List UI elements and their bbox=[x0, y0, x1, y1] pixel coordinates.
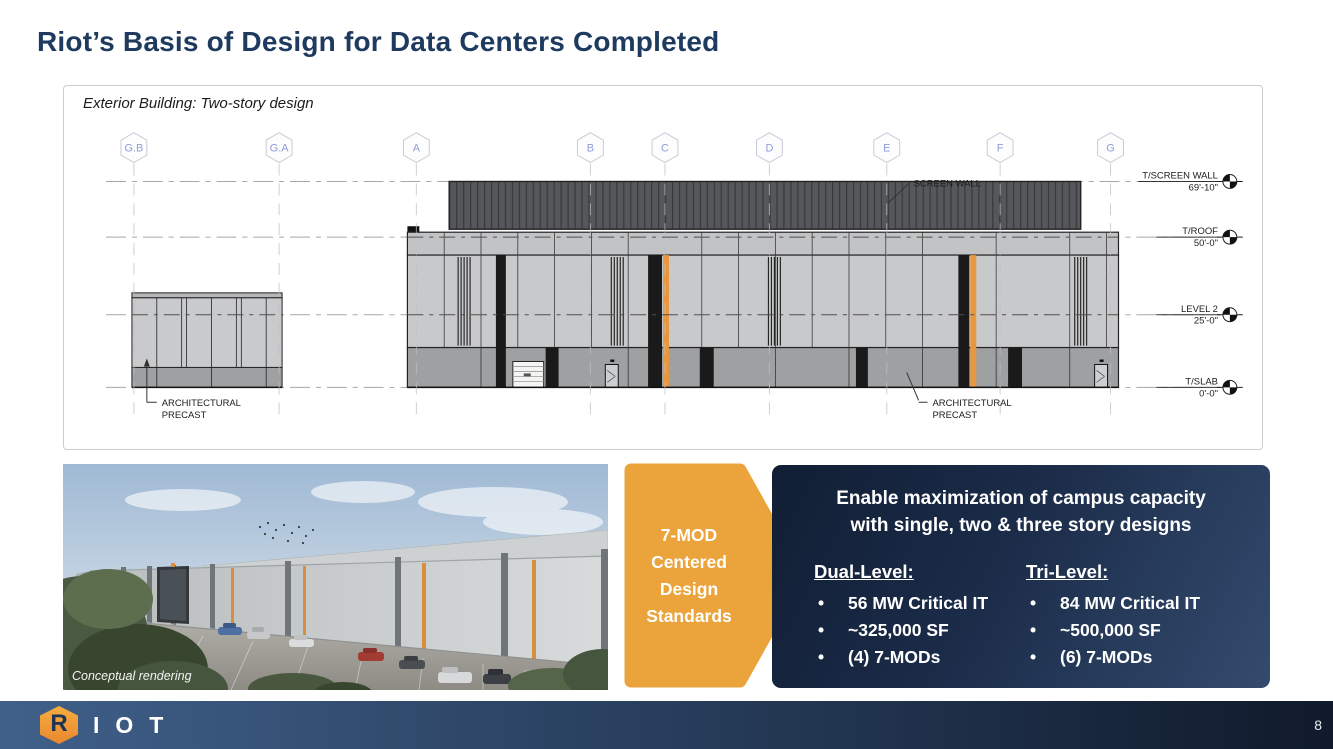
list-item: ~325,000 SF bbox=[814, 617, 1024, 644]
chevron-line: Design bbox=[660, 576, 718, 603]
list-item: (6) 7-MODs bbox=[1026, 644, 1252, 671]
list-item: ~500,000 SF bbox=[1026, 617, 1252, 644]
svg-text:T/SLAB: T/SLAB bbox=[1185, 376, 1218, 387]
small-precast-building bbox=[132, 293, 282, 387]
grid-label: B bbox=[587, 143, 594, 155]
elevation-drawing: G.B G.A A B C D E F G SCREEN WALL ARCHIT… bbox=[64, 86, 1262, 449]
page-number: 8 bbox=[1314, 717, 1322, 733]
orange-stripe bbox=[663, 255, 669, 387]
heading-line-2: with single, two & three story designs bbox=[772, 512, 1270, 539]
capacity-info-box: Enable maximization of campus capacity w… bbox=[772, 465, 1270, 688]
rendering-scene bbox=[63, 464, 608, 690]
heading-line-1: Enable maximization of campus capacity bbox=[772, 485, 1270, 512]
chevron-line: 7-MOD bbox=[661, 522, 717, 549]
chevron-line: Standards bbox=[646, 603, 732, 630]
footer-bar: R IOT 8 bbox=[0, 701, 1333, 749]
list-item: 56 MW Critical IT bbox=[814, 590, 1024, 617]
grid-label: D bbox=[765, 143, 773, 155]
grid-label: C bbox=[661, 143, 669, 155]
grid-label: G.A bbox=[270, 143, 290, 155]
riot-wordmark: IOT bbox=[93, 712, 179, 739]
svg-text:25'-0": 25'-0" bbox=[1194, 316, 1218, 327]
svg-text:ARCHITECTURAL: ARCHITECTURAL bbox=[933, 398, 1012, 409]
screen-wall-label: SCREEN WALL bbox=[914, 178, 981, 189]
bullet-icon bbox=[814, 590, 848, 617]
chevron-label: 7-MOD Centered Design Standards bbox=[624, 463, 754, 688]
svg-text:69'-10": 69'-10" bbox=[1189, 182, 1218, 193]
bullet-icon bbox=[814, 617, 848, 644]
riot-logo: R IOT bbox=[40, 706, 179, 744]
info-box-columns: Dual-Level: 56 MW Critical IT ~325,000 S… bbox=[814, 561, 1252, 671]
svg-text:LEVEL 2: LEVEL 2 bbox=[1181, 304, 1218, 315]
elevation-mark: T/SCREEN WALL 69'-10" bbox=[1138, 170, 1242, 193]
tri-level-heading: Tri-Level: bbox=[1026, 561, 1252, 583]
svg-text:PRECAST: PRECAST bbox=[933, 410, 978, 421]
riot-hex-letter: R bbox=[50, 710, 67, 738]
bullet-icon bbox=[1026, 644, 1060, 671]
svg-text:T/ROOF: T/ROOF bbox=[1182, 226, 1218, 237]
list-item: (4) 7-MODs bbox=[814, 644, 1024, 671]
orange-stripe bbox=[970, 255, 976, 387]
grid-label: E bbox=[883, 143, 890, 155]
drawing-caption: Exterior Building: Two-story design bbox=[83, 95, 314, 112]
svg-text:0'-0": 0'-0" bbox=[1199, 388, 1218, 399]
riot-hexagon-icon: R bbox=[40, 706, 78, 744]
svg-text:ARCHITECTURAL: ARCHITECTURAL bbox=[162, 398, 241, 409]
list-item: 84 MW Critical IT bbox=[1026, 590, 1252, 617]
grid-label: G.B bbox=[125, 143, 144, 155]
bullet-icon bbox=[814, 644, 848, 671]
grid-label: G bbox=[1106, 143, 1115, 155]
elevation-mark: LEVEL 2 25'-0" bbox=[1156, 304, 1243, 327]
tri-level-column: Tri-Level: 84 MW Critical IT ~500,000 SF… bbox=[1026, 561, 1252, 671]
grid-bubbles: G.B G.A A B C D E F G bbox=[121, 133, 1123, 163]
chevron-line: Centered bbox=[651, 549, 727, 576]
conceptual-rendering-image: Conceptual rendering bbox=[63, 464, 608, 690]
elevation-mark: T/SLAB 0'-0" bbox=[1156, 376, 1243, 399]
svg-text:T/SCREEN WALL: T/SCREEN WALL bbox=[1142, 170, 1218, 181]
elevation-markers: T/SCREEN WALL 69'-10" T/ROOF 50'-0" LEVE… bbox=[1138, 170, 1242, 399]
page-title: Riot’s Basis of Design for Data Centers … bbox=[37, 26, 719, 58]
building-entrance bbox=[157, 563, 189, 624]
grid-label: F bbox=[997, 143, 1004, 155]
dual-level-column: Dual-Level: 56 MW Critical IT ~325,000 S… bbox=[814, 561, 1024, 671]
elevation-drawing-panel: Exterior Building: Two-story design bbox=[63, 85, 1263, 450]
svg-text:50'-0": 50'-0" bbox=[1194, 238, 1218, 249]
screen-wall bbox=[449, 181, 1081, 229]
rollup-door bbox=[513, 361, 544, 387]
svg-text:PRECAST: PRECAST bbox=[162, 410, 207, 421]
photo-caption: Conceptual rendering bbox=[72, 669, 192, 683]
info-box-heading: Enable maximization of campus capacity w… bbox=[772, 485, 1270, 539]
grid-label: A bbox=[413, 143, 421, 155]
bullet-icon bbox=[1026, 590, 1060, 617]
dual-level-heading: Dual-Level: bbox=[814, 561, 1024, 583]
bullet-icon bbox=[1026, 617, 1060, 644]
elevation-mark: T/ROOF 50'-0" bbox=[1156, 226, 1243, 249]
